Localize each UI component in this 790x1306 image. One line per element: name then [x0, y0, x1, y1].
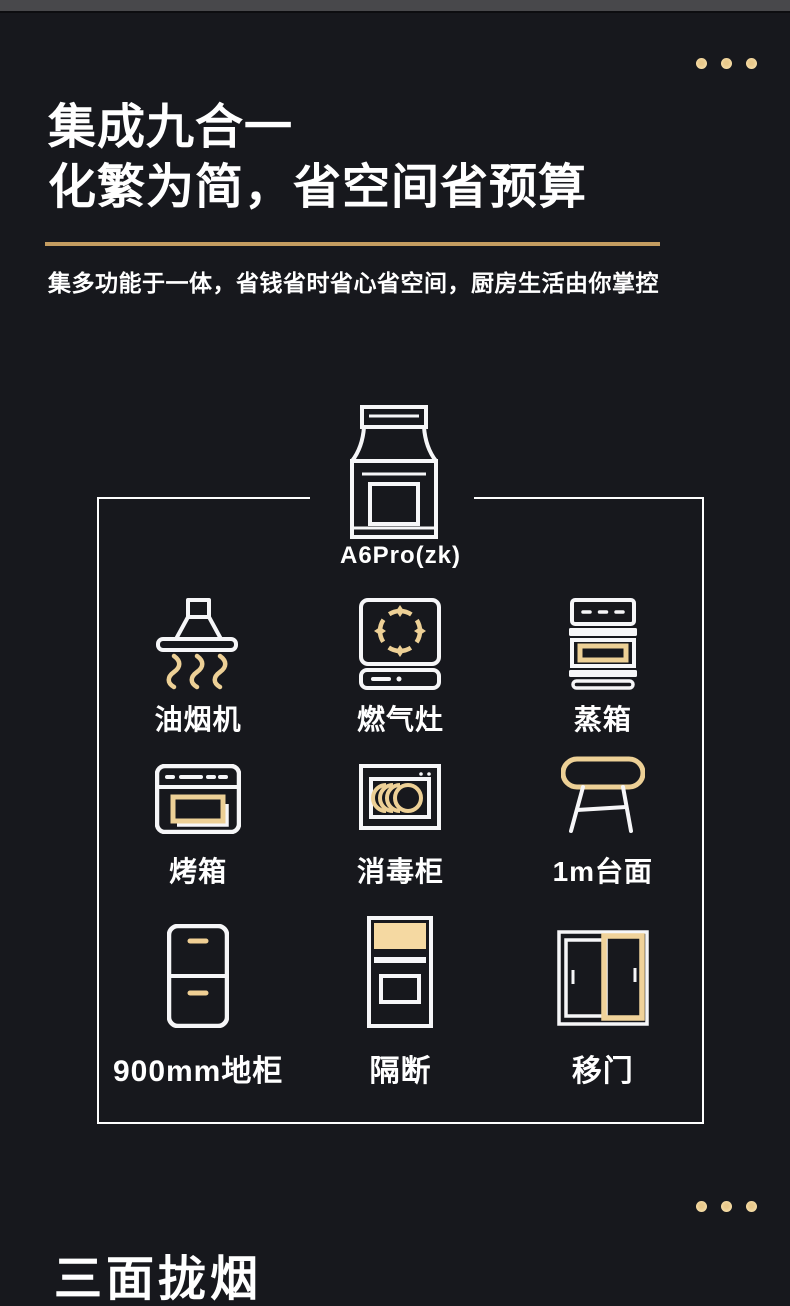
feature-label: 隔断: [369, 1046, 431, 1090]
gold-dot-icon: [721, 58, 732, 69]
disinfection-cabinet-icon: [359, 756, 441, 834]
gold-dot-icon: [746, 58, 757, 69]
feature-label: 1m台面: [553, 850, 653, 890]
steam-oven-icon: [567, 598, 639, 690]
model-label: A6Pro(zk): [97, 542, 704, 570]
feature-grid-row-2: 烤箱 消毒柜: [97, 756, 704, 890]
feature-label: 蒸箱: [574, 698, 632, 738]
oven-icon: [155, 756, 241, 834]
feature-cell-floor-cabinet: 900mm地柜: [97, 918, 299, 1090]
range-hood-icon: [155, 598, 241, 690]
integrated-cooker-icon: [348, 404, 440, 540]
previous-section-edge: [0, 0, 790, 13]
feature-cell-partition: 隔断: [299, 918, 501, 1090]
feature-cell-disinfection-cabinet: 消毒柜: [299, 756, 501, 890]
decor-dots-top: [696, 58, 757, 69]
feature-grid-row-1: 油烟机 燃气灶: [97, 598, 704, 738]
feature-cell-sliding-door: 移门: [502, 918, 704, 1090]
gold-dot-icon: [721, 1201, 732, 1212]
feature-label: 900mm地柜: [113, 1046, 283, 1090]
section-subtitle: 集多功能于一体，省钱省时省心省空间，厨房生活由你掌控: [48, 264, 659, 298]
feature-label: 油烟机: [155, 698, 242, 738]
feature-label: 消毒柜: [357, 850, 444, 890]
next-section-partial-heading: 三面拢烟: [54, 1256, 262, 1304]
sliding-door-icon: [557, 918, 649, 1028]
feature-grid-row-3: 900mm地柜 隔断 移门: [97, 918, 704, 1090]
feature-label: 移门: [572, 1046, 634, 1090]
feature-label: 烤箱: [169, 850, 227, 890]
title-line1: 集成九合一: [48, 101, 293, 154]
gold-dot-icon: [696, 1201, 707, 1212]
countertop-icon: [561, 756, 645, 834]
gold-dot-icon: [696, 58, 707, 69]
feature-cell-countertop: 1m台面: [502, 756, 704, 890]
feature-cell-range-hood: 油烟机: [97, 598, 299, 738]
partition-icon: [367, 918, 433, 1028]
title-line2: 化繁为简，省空间省预算: [48, 161, 587, 214]
title-underline: [45, 242, 660, 246]
feature-cell-oven: 烤箱: [97, 756, 299, 890]
feature-label: 燃气灶: [357, 698, 444, 738]
decor-dots-bottom: [696, 1201, 757, 1212]
gas-stove-icon: [359, 598, 441, 690]
section-title: 集成九合一化繁为简，省空间省预算: [48, 98, 587, 218]
gold-dot-icon: [746, 1201, 757, 1212]
feature-cell-steam-oven: 蒸箱: [502, 598, 704, 738]
feature-cell-gas-stove: 燃气灶: [299, 598, 501, 738]
floor-cabinet-icon: [167, 918, 229, 1028]
